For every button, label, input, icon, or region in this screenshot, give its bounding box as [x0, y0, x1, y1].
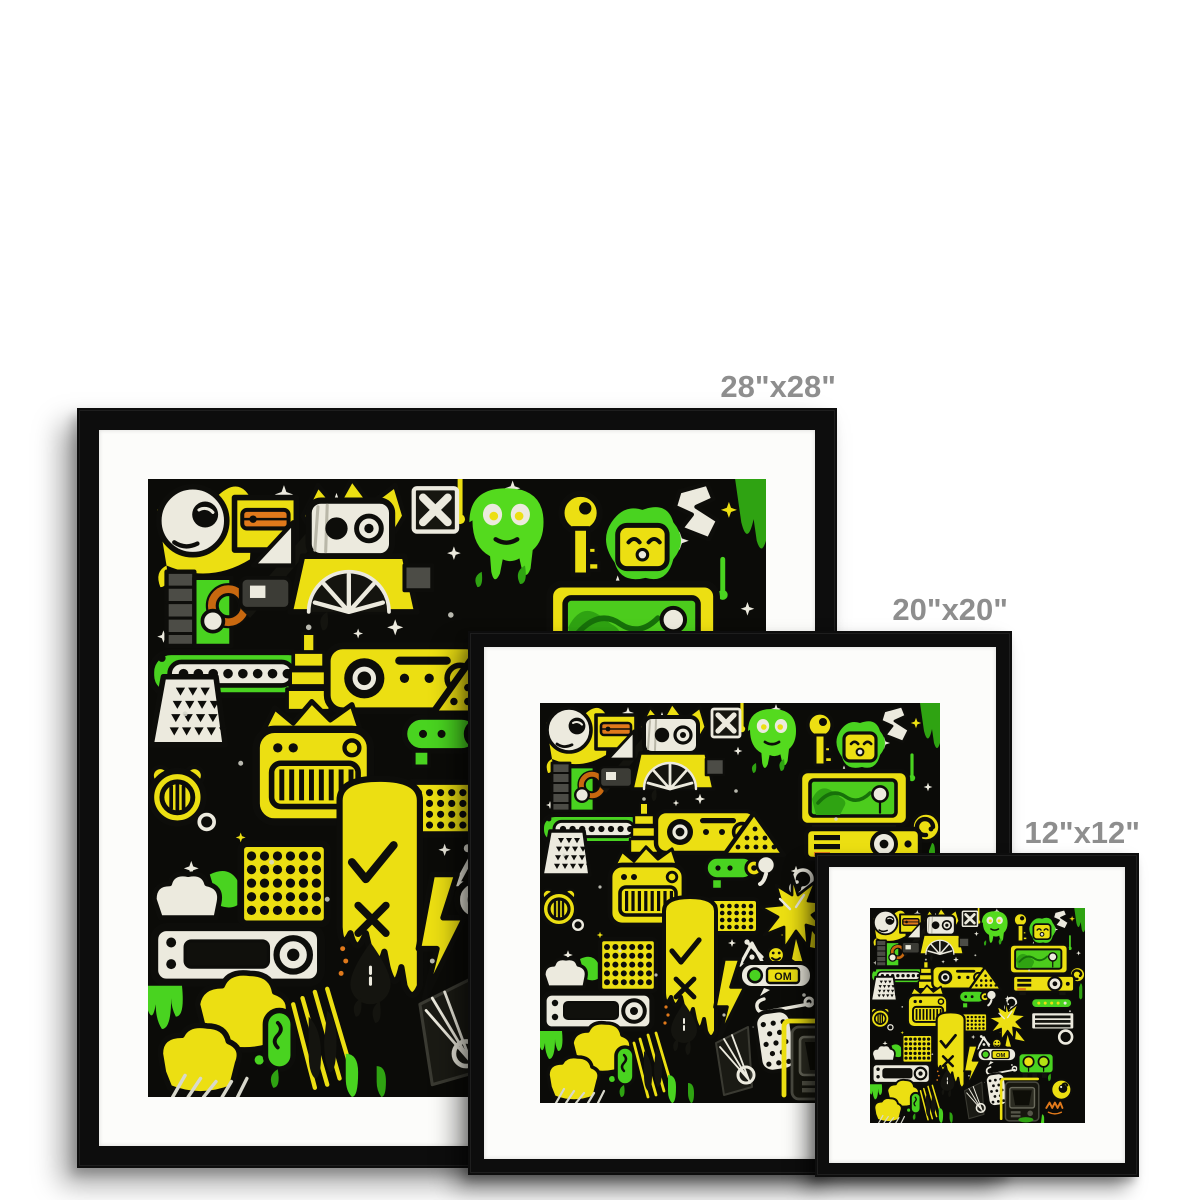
- size-label-20in: 20"x20": [892, 594, 1008, 625]
- size-label-12in: 12"x12": [1024, 817, 1140, 848]
- mat-board-12in: [829, 867, 1125, 1163]
- size-label-28in: 28"x28": [720, 371, 836, 402]
- artwork-12in: [870, 908, 1085, 1123]
- mockup-stage: OM: [0, 0, 1200, 1200]
- framed-print-12in: [815, 853, 1139, 1177]
- doodle-artwork-image: [870, 908, 1085, 1123]
